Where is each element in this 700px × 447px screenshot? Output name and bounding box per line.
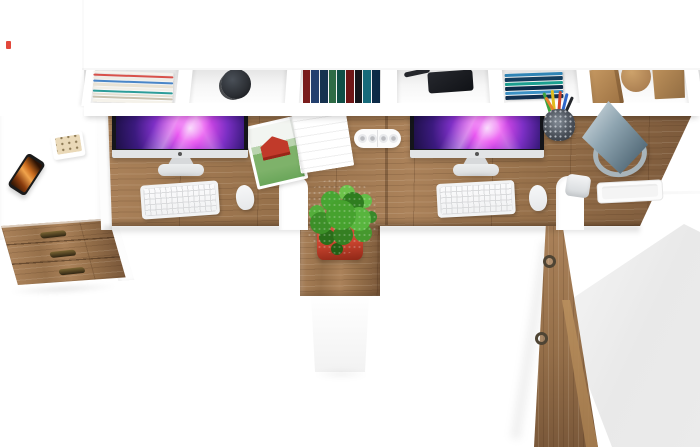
socket [379, 134, 388, 143]
hutch-top-panel [82, 0, 700, 70]
pencil-cup [543, 109, 575, 141]
product-photo-desk-set [0, 0, 700, 447]
coffee-mug [221, 69, 251, 99]
keyboard-keys [143, 184, 217, 217]
barn-house [258, 133, 290, 161]
imac-left [112, 110, 248, 158]
ring-handle-top [543, 255, 556, 268]
color-stripe [320, 69, 328, 104]
desk-clamp [565, 173, 592, 198]
power-strip-hinge [377, 130, 378, 147]
imac-right-screen [414, 113, 540, 149]
watermark [6, 41, 11, 49]
apple-logo-dot [178, 152, 182, 156]
color-stripe [363, 69, 371, 104]
book-row [302, 69, 380, 104]
color-stripe [337, 69, 345, 104]
plant-foliage-texture [302, 178, 378, 254]
color-stripe [329, 69, 337, 104]
apple-logo-dot [475, 152, 479, 156]
desk-seam [385, 110, 388, 225]
imac-left-shadow [150, 174, 212, 181]
hutch-center-divider [381, 65, 397, 106]
power-strip [354, 129, 401, 148]
color-stripe [303, 69, 311, 104]
pedestal-front-shadow [314, 370, 368, 378]
imac-right [410, 110, 544, 158]
socket [389, 134, 398, 143]
ring-handle-bottom [535, 332, 548, 345]
pedestal-front [309, 294, 371, 372]
hutch-divider [488, 66, 505, 106]
paper-tray [596, 179, 663, 203]
magazine-stack [92, 70, 173, 105]
imac-left-screen [116, 113, 244, 149]
pencil-cup-group [538, 86, 580, 144]
potted-plant [298, 178, 382, 266]
color-stripe [355, 69, 363, 104]
paper-tray-inner [602, 184, 659, 200]
color-stripe [311, 69, 319, 104]
keyboard-left [140, 180, 220, 219]
socket [358, 134, 367, 143]
color-stripe [372, 69, 380, 104]
black-case [427, 69, 473, 93]
color-stripe [346, 69, 354, 104]
keyboard-keys [439, 183, 512, 215]
socket [368, 134, 377, 143]
keyboard-right [436, 180, 516, 218]
hutch-divider [285, 66, 302, 106]
